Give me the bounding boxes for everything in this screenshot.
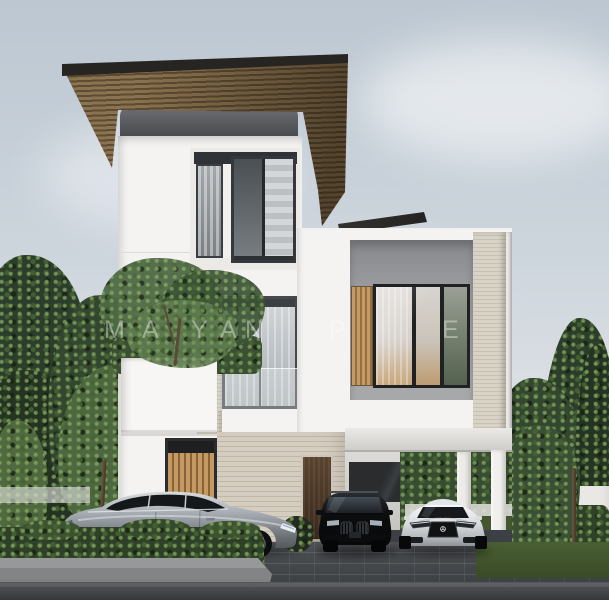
ground-window-header <box>168 441 214 453</box>
limestone-column <box>473 232 506 434</box>
suv-headlight <box>327 520 339 526</box>
watermark-letter: N <box>245 316 264 345</box>
carport-ceiling <box>345 428 512 450</box>
top-window-wide <box>231 156 296 263</box>
window-pane-dark <box>234 159 262 256</box>
window-sill <box>234 256 293 260</box>
suv-headlight <box>370 520 382 526</box>
watermark-letter: A <box>142 316 160 345</box>
planter-shadow <box>121 430 217 436</box>
tree-right-front <box>500 425 580 560</box>
top-window-narrow <box>196 164 223 258</box>
cloud <box>360 40 609 160</box>
front-hedge-tuft <box>120 519 190 539</box>
watermark-letter: P <box>329 316 347 345</box>
watermark-letter: M <box>104 316 126 345</box>
architectural-render-scene: M A Y A N P E <box>0 0 609 600</box>
black-suv <box>312 482 398 556</box>
window-pane-curtain <box>265 159 293 256</box>
front-hedge-tuft <box>20 520 80 540</box>
watermark-letter: A <box>220 316 238 345</box>
tree-trunk <box>572 468 576 553</box>
watermark-letter: Y <box>191 316 209 345</box>
front-hedge-tuft <box>200 521 260 539</box>
glass-balustrade <box>218 368 304 411</box>
street-sheen <box>0 583 609 587</box>
white-coupe <box>396 492 490 554</box>
timber-slat-panel <box>351 286 373 386</box>
top-window-mullion <box>223 164 231 258</box>
lawn-right <box>476 542 609 578</box>
planter-box <box>121 358 217 432</box>
watermark-letter: E <box>442 316 460 345</box>
